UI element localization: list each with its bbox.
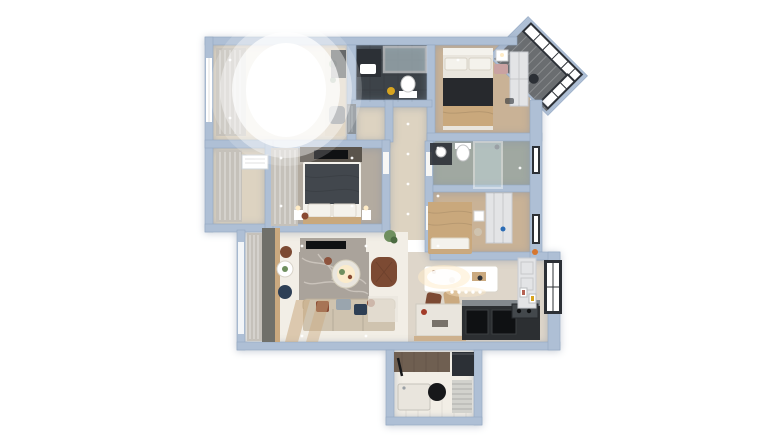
pillow-navy xyxy=(354,304,367,315)
window-bedroom3 xyxy=(532,214,540,244)
headboard xyxy=(443,48,493,55)
toilet xyxy=(457,145,470,161)
kettle xyxy=(421,309,427,315)
divider-edge xyxy=(275,228,280,342)
wall-entry-bottom xyxy=(386,417,482,425)
window-kitchen xyxy=(544,260,562,314)
sink xyxy=(360,64,376,74)
wardrobe xyxy=(486,193,512,243)
slippers xyxy=(505,98,514,104)
striped-mat xyxy=(452,380,472,413)
pillow xyxy=(469,58,491,70)
art xyxy=(522,290,525,295)
wood-floor-strip xyxy=(414,336,466,341)
pendant-lights xyxy=(446,287,486,297)
warm-lamp xyxy=(302,213,309,220)
burner xyxy=(517,309,521,313)
duvet xyxy=(428,202,472,238)
round-rug xyxy=(428,383,446,401)
lamp xyxy=(500,53,504,57)
wall-entry-right xyxy=(474,350,482,425)
window-bathroom2 xyxy=(532,146,540,174)
screenshot-root xyxy=(0,0,780,438)
wood-divider xyxy=(262,228,275,342)
pillow-gray xyxy=(336,299,351,310)
pillow xyxy=(445,58,467,70)
jar xyxy=(478,276,483,281)
shower-glass xyxy=(384,47,426,72)
stool xyxy=(474,228,482,236)
toilet xyxy=(401,76,415,92)
shower-head xyxy=(495,145,500,150)
burner xyxy=(527,309,531,313)
floor-mat xyxy=(368,296,398,322)
headboard xyxy=(303,217,361,224)
floorplan-svg xyxy=(0,0,780,438)
food xyxy=(339,269,345,275)
stool xyxy=(278,285,292,299)
hallway-floor xyxy=(390,141,425,240)
wall-bottom xyxy=(237,342,560,350)
stool xyxy=(280,246,292,258)
lamp xyxy=(296,206,301,211)
shoe-cabinet xyxy=(452,352,474,376)
pillow xyxy=(308,204,331,217)
coffee-table-glow xyxy=(337,265,355,283)
window-living-balcony xyxy=(238,242,244,334)
food-plate xyxy=(282,266,288,272)
tray xyxy=(432,320,448,327)
wall-entry-left xyxy=(386,350,394,425)
plant xyxy=(391,237,398,244)
flowers xyxy=(532,249,538,255)
bucket xyxy=(387,87,395,95)
food xyxy=(348,275,352,279)
bench-pillows xyxy=(494,64,508,74)
wall-cells-divider xyxy=(385,100,393,142)
bedside-table xyxy=(474,211,484,221)
lamp xyxy=(364,206,369,211)
bedside-table xyxy=(362,210,371,220)
wall-bath-bed2-divider xyxy=(427,45,435,142)
oven xyxy=(466,310,488,334)
small-table xyxy=(324,257,332,265)
tv xyxy=(306,241,346,249)
wall-bed2-bottom xyxy=(427,133,542,141)
blue-bottle xyxy=(501,227,506,232)
door-master-bedroom xyxy=(383,152,389,174)
duvet xyxy=(305,164,359,204)
tan-throw xyxy=(443,106,493,126)
drain xyxy=(402,386,405,389)
headboard xyxy=(428,249,472,253)
art xyxy=(531,296,534,301)
